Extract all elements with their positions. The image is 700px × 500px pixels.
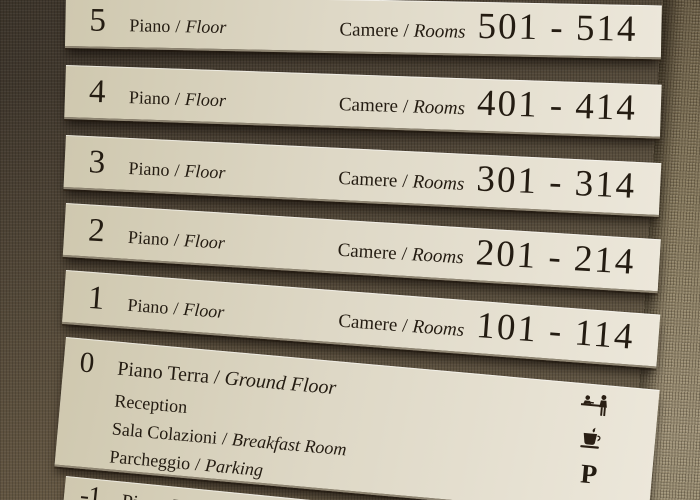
separator: / (174, 160, 180, 180)
room-range: 101 - 114 (475, 307, 636, 356)
rooms-label-english: Rooms (413, 97, 465, 120)
floor-label-italian: Piano (129, 15, 170, 36)
floor-label-english: Floor (185, 16, 226, 37)
separator: / (403, 20, 409, 41)
floor-plate-5: 5 Piano/Floor Camere/Rooms 501 - 514 (65, 0, 662, 59)
floor-label-english: Floor (185, 89, 227, 110)
separator: / (402, 315, 409, 336)
hotel-floor-directory-photo: 5 Piano/Floor Camere/Rooms 501 - 514 4 P… (0, 0, 700, 500)
floor-label-english: Floor (183, 230, 225, 252)
rooms-label: Camere/Rooms (339, 94, 466, 120)
rooms-label: Camere/Rooms (338, 311, 465, 342)
rooms-label: Camere/Rooms (337, 240, 464, 270)
floor-label: Piano/Floor (129, 15, 226, 38)
separator: / (403, 96, 409, 117)
floor-label: Piano/Floor (127, 295, 225, 323)
rooms-label-english: Rooms (412, 171, 465, 194)
separator: / (221, 428, 228, 448)
floor-label: Piano/Floor (128, 158, 226, 184)
floor-number: 1 (87, 282, 129, 318)
separator: / (194, 454, 201, 474)
floor-label: Piano/Floor (127, 227, 225, 254)
floor-label-english: Floor (184, 161, 226, 183)
rooms-label-italian: Camere (338, 168, 398, 192)
separator: / (175, 16, 180, 36)
floor-label-italian: Piano (127, 227, 169, 249)
floor-number: 4 (89, 76, 130, 110)
room-range: 501 - 514 (477, 8, 638, 48)
coffee-cup-icon (578, 426, 606, 451)
floor-label-english: Floor (183, 299, 225, 322)
rooms-label-english: Rooms (414, 21, 466, 43)
separator: / (402, 171, 408, 192)
separator: / (173, 230, 179, 250)
separator: / (175, 89, 181, 109)
room-range: 301 - 314 (476, 160, 637, 204)
separator: / (401, 244, 408, 265)
floor-label: Piano/Floor (129, 87, 227, 111)
rooms-label-italian: Camere (337, 240, 397, 265)
floor-label-italian: Piano (129, 87, 171, 108)
floor-number: -1 (79, 482, 115, 500)
room-range: 401 - 414 (477, 85, 638, 127)
reception-label: Reception (114, 391, 188, 417)
room-range: 201 - 214 (475, 234, 637, 281)
rooms-label-english: Rooms (411, 244, 464, 268)
floor-plate-4: 4 Piano/Floor Camere/Rooms 401 - 414 (64, 65, 661, 139)
rooms-label-english: Rooms (412, 316, 465, 341)
parking-label-italian: Parcheggio (109, 446, 191, 473)
floor-number: 2 (87, 214, 129, 249)
floor-plate-3: 3 Piano/Floor Camere/Rooms 301 - 314 (63, 135, 661, 217)
floor-label-italian: Piano Inferiore (121, 491, 243, 500)
rooms-label-italian: Camere (339, 19, 398, 41)
separator: / (213, 366, 220, 388)
reception-desk-icon (579, 392, 612, 418)
floor-label-italian: Piano Terra (116, 358, 210, 388)
floor-label-english: Ground Floor (224, 367, 338, 399)
rooms-label-italian: Camere (338, 311, 398, 336)
separator: / (173, 298, 180, 318)
parking-label-english: Parking (204, 455, 264, 480)
floor-label-italian: Piano (128, 158, 170, 180)
floor-number: 0 (78, 348, 106, 379)
rooms-label-italian: Camere (339, 94, 399, 117)
floor-label-italian: Piano (127, 295, 169, 318)
floor-number: 5 (89, 4, 130, 38)
rooms-label: Camere/Rooms (338, 168, 465, 196)
parking-letter-icon: P (579, 460, 598, 488)
floor-number: 3 (88, 146, 130, 181)
rooms-label: Camere/Rooms (339, 19, 465, 43)
